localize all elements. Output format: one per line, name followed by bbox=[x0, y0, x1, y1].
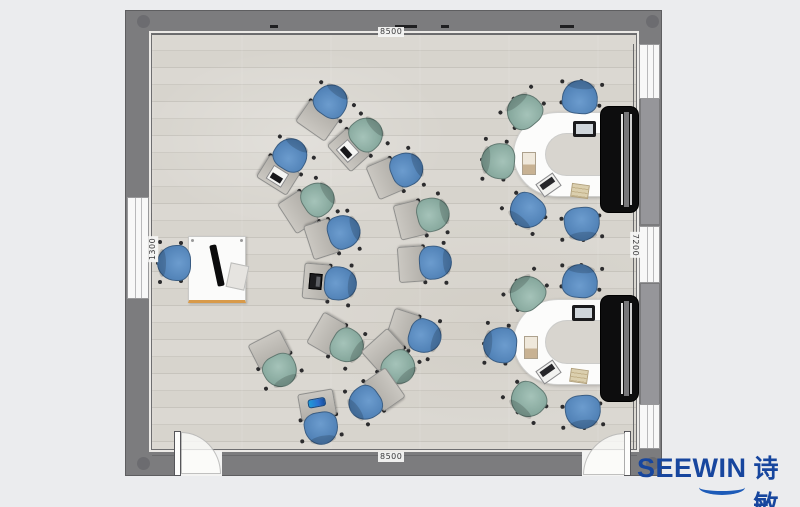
wall-display-screen bbox=[600, 106, 639, 213]
node-chair-blue bbox=[301, 258, 365, 307]
chair-seat bbox=[481, 326, 518, 365]
dimension-label-right: 7200 bbox=[630, 232, 640, 258]
brand-logo-text: SEEWIN bbox=[637, 453, 747, 484]
chair-seat bbox=[561, 78, 600, 115]
display-stripe bbox=[624, 112, 629, 207]
wall-marker-dash bbox=[441, 25, 449, 28]
display-stripe bbox=[630, 114, 632, 204]
chair-green bbox=[466, 136, 530, 185]
column-post bbox=[646, 15, 659, 28]
cabinet bbox=[524, 336, 538, 359]
door-leaf bbox=[174, 431, 181, 476]
desk-grommet bbox=[240, 239, 243, 242]
dimension-label-left: 1300 bbox=[148, 236, 158, 262]
papers bbox=[570, 183, 590, 199]
monitor bbox=[573, 121, 596, 137]
monitor bbox=[572, 305, 595, 321]
window-right-wall bbox=[639, 44, 660, 99]
wall-marker-dash bbox=[270, 25, 278, 28]
cabinet bbox=[522, 152, 536, 175]
media-wall-panel bbox=[640, 98, 660, 225]
chair-seat bbox=[157, 245, 191, 281]
chair-seat bbox=[479, 142, 516, 181]
column-post bbox=[137, 457, 150, 470]
dimension-label-bottom: 8500 bbox=[378, 452, 404, 462]
floorplan-scene: 8500 8500 7200 1300 SEEWIN 诗敏 bbox=[0, 0, 800, 507]
papers bbox=[569, 368, 589, 384]
chair-blue bbox=[555, 65, 604, 129]
column-post bbox=[137, 15, 150, 28]
logo-smile-arc bbox=[699, 480, 745, 495]
display-stripe bbox=[621, 303, 623, 393]
brand-logo: SEEWIN 诗敏 bbox=[637, 449, 800, 507]
chair-seat bbox=[323, 265, 359, 302]
chair-seat bbox=[563, 205, 602, 242]
chair-seat bbox=[564, 393, 603, 430]
wall-marker-dash bbox=[560, 25, 574, 28]
door-leaf bbox=[624, 431, 631, 476]
window-right-wall bbox=[639, 404, 660, 449]
chair-blue bbox=[555, 249, 604, 313]
brand-logo-cjk: 诗敏 bbox=[754, 449, 800, 507]
chair-blue bbox=[468, 320, 532, 369]
chair-seat bbox=[561, 262, 600, 299]
laptop-black bbox=[308, 273, 322, 290]
chair-seat bbox=[302, 409, 341, 447]
display-stripe bbox=[621, 114, 623, 204]
display-stripe bbox=[630, 303, 632, 393]
dimension-label-top: 8500 bbox=[378, 27, 404, 37]
chair-seat bbox=[418, 244, 453, 280]
node-chair-blue bbox=[397, 239, 460, 287]
window-right-wall bbox=[639, 226, 660, 283]
wall-display-screen bbox=[600, 295, 639, 402]
media-wall-panel bbox=[640, 283, 660, 405]
display-stripe bbox=[624, 301, 629, 396]
desk-grommet bbox=[191, 239, 194, 242]
